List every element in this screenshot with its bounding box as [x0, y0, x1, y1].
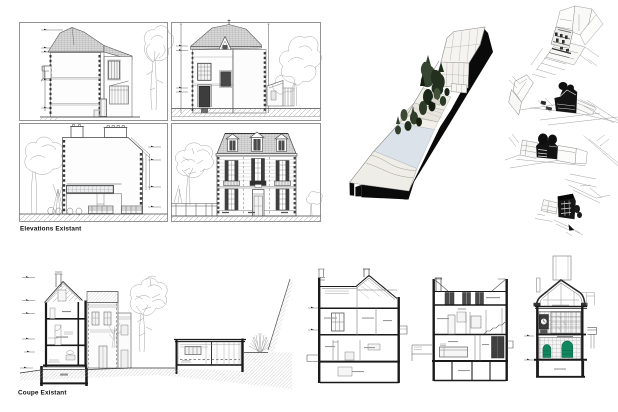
svg-text:Elevations Existant: Elevations Existant: [20, 226, 82, 233]
svg-text:Coupe Existant: Coupe Existant: [18, 390, 67, 397]
